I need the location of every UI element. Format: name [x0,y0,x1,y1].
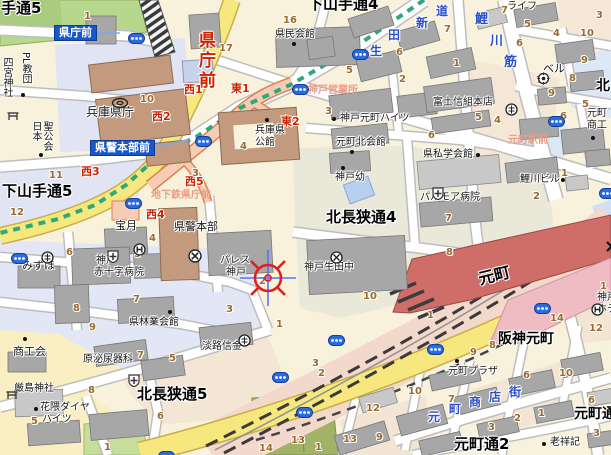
block-number: 3 [192,169,199,179]
street-name-ikuta-shindo: 生 [370,45,382,57]
subway-kenchomae-label: 県庁前 [196,31,213,91]
station-badge-kenkeihonbumae: 県警本部前 [90,140,155,156]
district-label: 手通5 [1,1,41,16]
block-number: 5 [346,66,353,76]
poi-kobe-ikuta-junior-high: 神戸生田中 [304,263,354,273]
poi-hara-urology: 原泌尿器科 [83,355,133,365]
poi-pl-kyodan: PL教団 [20,52,30,84]
district-label: 元町通 [574,407,611,421]
poi-dot-icon [591,136,595,140]
block-number: 13 [291,436,305,446]
block-number: 12 [366,404,380,414]
poi-dot-icon [332,117,336,121]
hanshin-motomachi-station-label: 阪神元町 [498,332,554,346]
poi-dot-icon [21,93,25,97]
block-number: 2 [399,75,406,85]
street-name-motomachi-shotengai: 商 [469,396,481,408]
street-name-koikawa-suji: 筋 [504,56,517,69]
block-number: 1 [104,443,111,453]
poi-dot-icon [168,310,172,314]
block-number: 9 [89,323,96,333]
block-number: 12 [589,324,603,334]
block-number: 8 [446,248,453,258]
street-name-koikawa-suji: 鯉 [475,13,488,26]
block-number: 1 [315,443,322,453]
block-number: 8 [489,341,496,351]
district-label: 北 [596,79,610,93]
block-number: 7 [445,214,452,224]
block-number: 3 [488,423,495,433]
poi-dot-icon [542,442,546,446]
area-label: 地下鉄県庁前 [151,191,211,201]
block-number: 1 [600,282,607,292]
block-number: 14 [550,314,564,324]
block-number: 5 [169,354,176,364]
poi-kenringyo-kaikan: 県林業会館 [129,318,179,328]
block-number: 7 [448,395,455,405]
poi-motomachi-kita-kaikan: 元町北会館 [336,138,386,148]
street-name-motomachi-shotengai: 街 [509,386,521,398]
map-labels-layer: 手通5下山手通4下山手通5北長狭通4北長狭通5元町通2元町通北阪神元町元町県庁前… [0,0,611,455]
district-label: 下山手通4 [308,0,378,12]
poi-police-hq: 県警本部 [174,221,218,232]
block-number: 4 [149,234,156,244]
block-number: 13 [343,435,357,445]
poi-dot-icon [34,407,38,411]
poi-red-cross-hospital: 赤十字病院 [94,268,144,278]
block-number: 6 [516,39,523,49]
poi-shokokai: 商工会 [13,346,46,357]
block-number: 2 [318,369,325,379]
exit-label: 西1 [184,84,203,95]
poi-itsukushima-shrine: 厳島神社 [14,384,54,394]
poi-fuji-shinkumi: 富士信組本店 [433,98,493,108]
street-name-motomachi-shotengai: 元 [428,411,440,423]
poi-shinomiya-shrine: 四宮神社 [1,57,11,97]
jr-motomachi-station-label: 元町 [477,264,512,287]
block-number: 7 [137,351,144,361]
district-label: 元町通2 [454,437,509,452]
block-number: 10 [140,95,154,105]
district-label: 北長狭通5 [137,387,207,402]
block-number: 10 [559,369,573,379]
block-number: 9 [376,433,383,443]
poi-hyogo-kokan: 公館 [255,138,275,148]
poi-nihon-seikokai: 日本 [30,121,40,141]
street-name-motomachi-shotengai: 店 [489,391,501,403]
station-badge-kenchomae: 県庁前 [54,25,97,41]
poi-nihon-seikokai: 聖公会 [41,121,51,151]
block-number: 17 [219,44,233,54]
block-number: 1 [453,59,460,69]
poi-dot-icon [292,42,296,46]
block-number: 3 [593,429,600,439]
area-label: 元町駅前 [508,136,548,146]
block-number: 3 [226,305,233,315]
poi-dot-icon [39,153,43,157]
poi-roshoki: 老祥記 [550,438,580,448]
block-number: 2 [533,192,540,202]
poi-hyogo-kokan: 兵庫県 [255,126,285,136]
exit-label: 西4 [146,209,165,220]
poi-dot-icon [476,153,480,157]
street-name-koikawa-suji: 川 [490,35,503,48]
poi-shigaku-kaikan: 県私学会館 [423,150,473,160]
block-number: 7 [501,6,508,16]
block-number: 7 [444,25,451,35]
poi-motomachi-shoko: 商工 [587,121,607,131]
area-label: 神戸営業所 [308,86,358,96]
street-name-ikuta-shindo: 道 [436,5,448,17]
poi-hogetsu: 宝月 [115,220,137,231]
block-number: 8 [88,386,95,396]
block-number: 16 [283,16,297,26]
map-canvas[interactable]: 手通5下山手通4下山手通5北長狭通4北長狭通5元町通2元町通北阪神元町元町県庁前… [0,0,611,455]
poi-motomachi-shoko: 元町 [587,109,607,119]
poi-dot-icon [561,178,565,182]
block-number: 9 [470,348,477,358]
district-label: 下山手通5 [2,184,72,199]
block-number: 1 [427,311,434,321]
block-number: 8 [73,304,80,314]
poi-dot-icon [341,166,345,170]
poi-kobe-motomachi-heights: 神戸元町ハイツ [340,114,410,124]
poi-kenmin-kaikan: 県民会館 [275,30,315,40]
block-number: 8 [569,74,576,84]
poi-kobe-hotel: 神戸 [597,293,611,303]
poi-palmore-hospital: パルモア病院 [420,193,480,203]
block-number: 6 [66,248,73,258]
block-number: 5 [475,113,482,123]
block-number: 7 [133,295,140,305]
block-number: 10 [408,387,422,397]
block-number: 9 [548,89,555,99]
block-number: 12 [10,208,24,218]
street-name-ikuta-shindo: 田 [388,29,400,41]
poi-kobe-kindergarten: 神戸幼 [335,173,365,183]
block-number: 1 [276,320,283,330]
block-number: 14 [259,444,273,454]
poi-hanakuma-daiya-heights: 花隈ダイヤ [40,403,90,413]
poi-dot-icon [265,118,269,122]
poi-hanakuma-daiya-heights: ハイツ [42,415,72,425]
street-name-ikuta-shindo: 新 [416,17,428,29]
block-number: 3 [325,107,332,117]
exit-label: 西2 [152,111,171,122]
block-number: 5 [582,100,589,110]
block-number: 6 [157,412,164,422]
block-number: 9 [581,56,588,66]
poi-dot-icon [23,337,27,341]
block-number: 6 [396,48,403,58]
poi-motomachi-life: ライフ [507,2,537,12]
poi-dot-icon [455,359,459,363]
poi-koikawa-building: 鯉川ビル [520,175,560,185]
block-number: 1 [538,409,545,419]
block-number: 10 [580,29,594,39]
block-number: 10 [363,292,377,302]
block-number: 4 [240,142,247,152]
block-number: 5 [31,417,38,427]
block-number: 6 [588,396,595,406]
poi-awaji-shinkin: 淡路信金 [202,342,242,352]
block-number: 1 [84,12,91,22]
exit-label: 東1 [231,83,250,94]
block-number: 4 [553,29,560,39]
exit-label: 西3 [81,166,100,177]
poi-dot-icon [350,150,354,154]
block-number: 6 [428,131,435,141]
block-number: 3 [596,11,603,21]
block-number: 11 [49,171,63,181]
block-number: 6 [523,371,530,381]
block-number: 5 [524,20,531,30]
block-number: 2 [514,414,521,424]
poi-motomachi-plaza: 元町プラザ [448,367,498,377]
district-label: 北長狭通4 [326,210,396,225]
block-number: 4 [494,116,501,126]
